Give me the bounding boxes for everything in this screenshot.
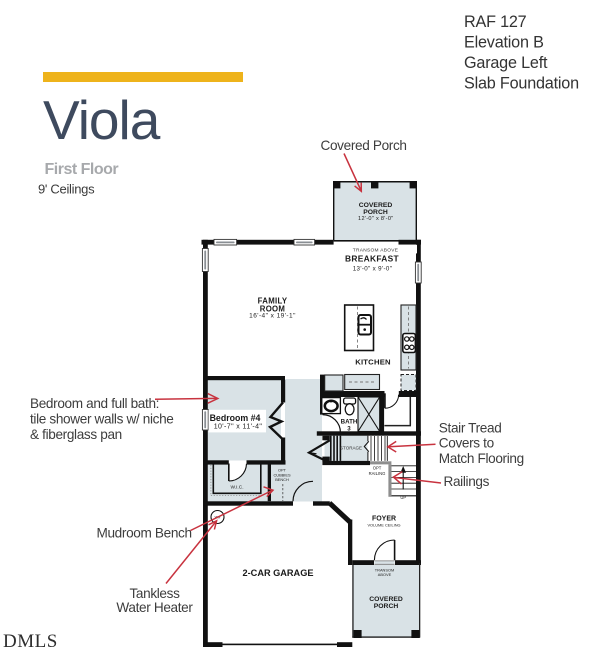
svg-text:BATH: BATH bbox=[341, 419, 358, 426]
svg-text:Tankless: Tankless bbox=[129, 586, 180, 601]
svg-text:Garage Left: Garage Left bbox=[464, 54, 548, 72]
svg-text:Covered Porch: Covered Porch bbox=[321, 138, 407, 153]
svg-text:Water Heater: Water Heater bbox=[116, 600, 193, 615]
svg-text:BENCH: BENCH bbox=[275, 477, 289, 482]
svg-text:2-CAR GARAGE: 2-CAR GARAGE bbox=[243, 568, 314, 578]
svg-text:Covers to: Covers to bbox=[439, 436, 494, 451]
svg-text:Bedroom #4: Bedroom #4 bbox=[210, 413, 261, 423]
svg-text:BREAKFAST: BREAKFAST bbox=[345, 254, 399, 264]
svg-text:OPT: OPT bbox=[373, 466, 382, 471]
svg-text:COVERED: COVERED bbox=[369, 596, 403, 603]
svg-text:ABOVE: ABOVE bbox=[378, 572, 392, 577]
svg-text:Mudroom Bench: Mudroom Bench bbox=[97, 525, 192, 540]
svg-text:PORCH: PORCH bbox=[363, 209, 388, 216]
svg-text:KITCHEN: KITCHEN bbox=[355, 357, 391, 366]
svg-text:tile shower walls w/ niche: tile shower walls w/ niche bbox=[30, 412, 174, 427]
svg-text:DMLS: DMLS bbox=[3, 631, 58, 652]
svg-text:W.I.C.: W.I.C. bbox=[230, 485, 243, 491]
svg-text:16'-4" x 19'-1": 16'-4" x 19'-1" bbox=[249, 312, 296, 319]
svg-text:Stair Tread: Stair Tread bbox=[439, 420, 502, 435]
svg-text:12'-0" x 8'-0": 12'-0" x 8'-0" bbox=[358, 216, 394, 222]
svg-text:13'-0" x 9'-0": 13'-0" x 9'-0" bbox=[353, 266, 393, 273]
svg-text:3: 3 bbox=[347, 426, 351, 433]
svg-text:9' Ceilings: 9' Ceilings bbox=[38, 182, 95, 197]
svg-text:Elevation B: Elevation B bbox=[464, 34, 544, 52]
svg-text:STORAGE: STORAGE bbox=[340, 446, 362, 451]
svg-text:First Floor: First Floor bbox=[45, 161, 119, 178]
svg-text:Railings: Railings bbox=[444, 474, 490, 489]
svg-text:Viola: Viola bbox=[43, 89, 161, 151]
svg-text:FOYER: FOYER bbox=[372, 515, 396, 522]
svg-text:UP: UP bbox=[400, 495, 406, 500]
svg-text:Match Flooring: Match Flooring bbox=[439, 451, 524, 466]
svg-text:PORCH: PORCH bbox=[374, 603, 399, 610]
svg-text:VOLUME CEILING: VOLUME CEILING bbox=[367, 522, 400, 527]
svg-text:Bedroom and full bath:: Bedroom and full bath: bbox=[30, 396, 159, 411]
svg-text:& fiberglass pan: & fiberglass pan bbox=[30, 427, 122, 442]
svg-text:RAF 127: RAF 127 bbox=[464, 13, 527, 31]
svg-text:COVERED: COVERED bbox=[359, 202, 393, 209]
svg-text:10'-7" x 11'-4": 10'-7" x 11'-4" bbox=[214, 423, 263, 430]
svg-text:Slab Foundation: Slab Foundation bbox=[464, 75, 579, 93]
svg-text:RAILING: RAILING bbox=[369, 471, 386, 476]
